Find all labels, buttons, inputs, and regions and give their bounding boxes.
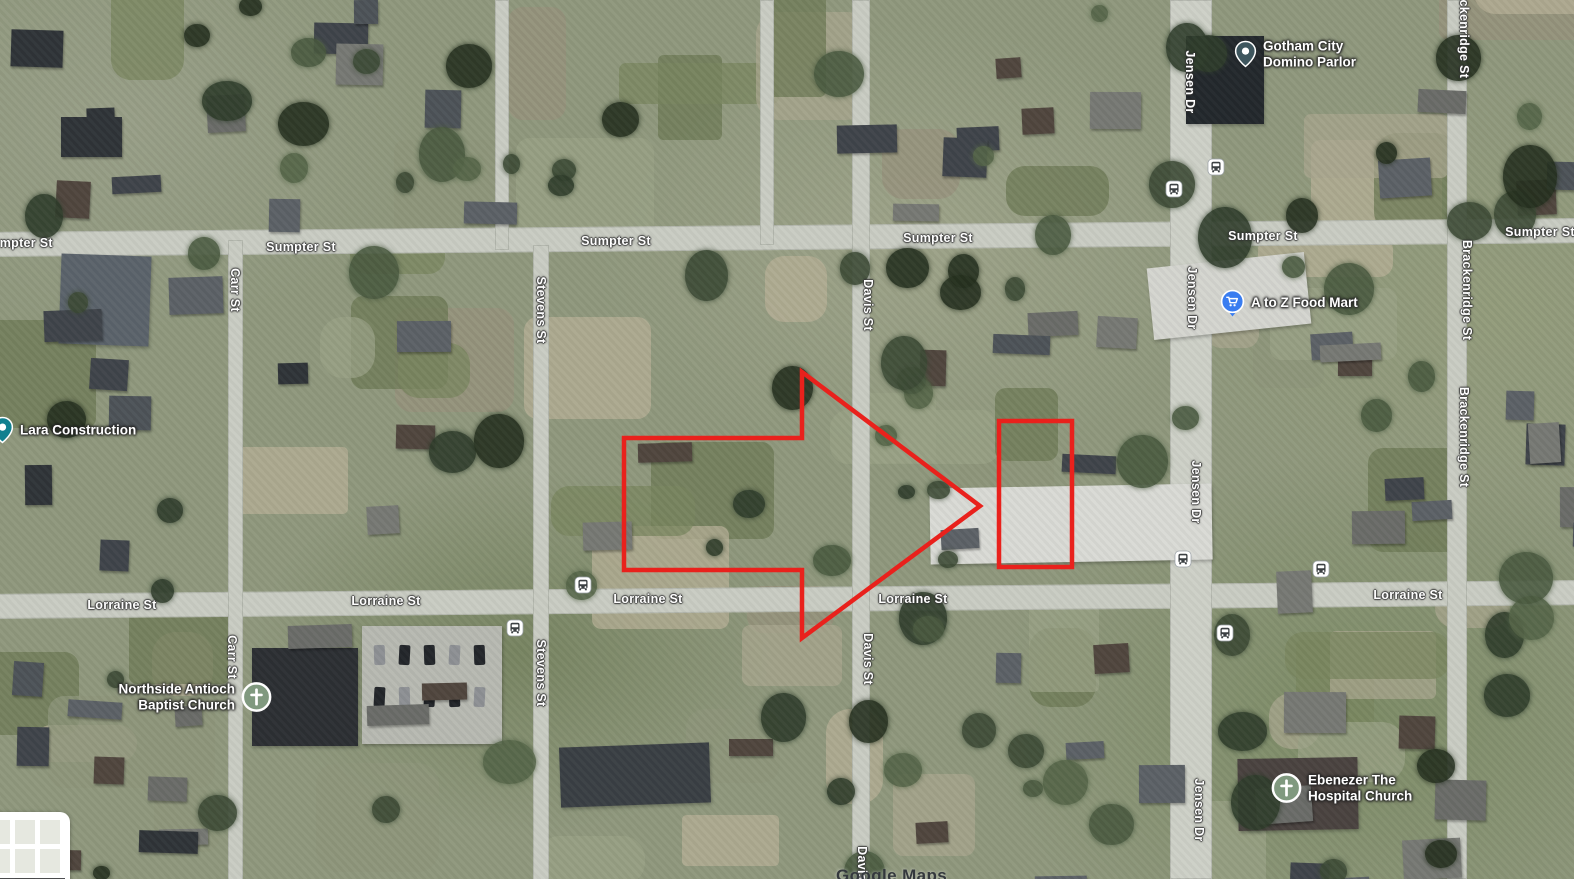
map-decor-tree bbox=[1218, 712, 1267, 751]
map-decor-house bbox=[942, 137, 987, 178]
map-decor-house bbox=[168, 276, 223, 315]
street-label-lorraine-st: Lorraine St bbox=[1373, 588, 1442, 602]
map-decor-car bbox=[399, 687, 411, 707]
map-decor-tree bbox=[1417, 749, 1455, 783]
map-decor-lawn bbox=[1474, 0, 1574, 14]
street-label-sumpter-st: Sumpter St bbox=[1228, 229, 1298, 243]
map-decor-lawn bbox=[1374, 133, 1458, 236]
map-decor-lawn bbox=[893, 774, 975, 856]
map-commercial-building bbox=[929, 484, 1212, 565]
map-decor-tree bbox=[849, 700, 888, 743]
map-decor-tree bbox=[1214, 614, 1250, 655]
street-label-sumpter-st: Sumpter St bbox=[266, 240, 336, 254]
road bbox=[533, 245, 549, 879]
street-label-brackenridge-st: Brackenridge St bbox=[1460, 240, 1474, 340]
red-parcel-annotation bbox=[999, 421, 1072, 567]
map-decor-tree bbox=[278, 102, 329, 146]
map-decor-tree bbox=[1149, 161, 1195, 208]
map-decor-tree bbox=[940, 275, 981, 311]
map-decor-tree bbox=[1005, 277, 1025, 300]
place-label: Ebenezer TheHospital Church bbox=[1308, 772, 1412, 803]
map-decor-tree bbox=[875, 425, 897, 446]
map-decor-tree bbox=[904, 377, 933, 409]
street-label-lorraine-st: Lorraine St bbox=[613, 592, 682, 606]
shopping-cart-pin-icon bbox=[1220, 289, 1245, 317]
map-decor-tree bbox=[396, 172, 414, 193]
map-decor-tree bbox=[566, 571, 598, 599]
map-decor-lawn bbox=[882, 129, 960, 199]
map-decor-lawn bbox=[48, 696, 215, 788]
street-label-jensen-dr: Jensen Dr bbox=[1185, 266, 1199, 329]
map-decor-house bbox=[1527, 422, 1561, 464]
street-label-sumpter-st: Sumpter St bbox=[1505, 225, 1574, 239]
map-decor-lawn bbox=[1296, 640, 1374, 730]
map-decor-house bbox=[729, 738, 773, 755]
map-decor-tree bbox=[1320, 859, 1348, 879]
annotation-overlay bbox=[0, 0, 1574, 879]
place-marker-gotham-city-domino-parlor[interactable]: Gotham CityDomino Parlor bbox=[1234, 38, 1356, 69]
map-decor-house bbox=[99, 539, 129, 571]
map-decor-lawn bbox=[1177, 801, 1266, 879]
church-cross-icon bbox=[1271, 773, 1302, 804]
bus-stop-icon[interactable] bbox=[507, 620, 524, 637]
street-label-jensen-dr: Jensen Dr bbox=[1183, 50, 1197, 113]
map-decor-tree bbox=[1008, 734, 1044, 768]
map-decor-lawn bbox=[1330, 631, 1436, 699]
map-decor-lawn bbox=[1270, 288, 1397, 360]
map-decor-house bbox=[1435, 780, 1487, 821]
map-decor-tree bbox=[602, 102, 639, 137]
map-decor-tree bbox=[1231, 775, 1280, 830]
map-decor-house bbox=[1310, 331, 1354, 360]
map-parking-lot bbox=[362, 626, 502, 744]
map-decor-house bbox=[89, 357, 129, 390]
map-decor-lawn bbox=[316, 763, 439, 872]
street-label-lorraine-st: Lorraine St bbox=[87, 598, 156, 612]
bus-stop-icon[interactable] bbox=[1217, 625, 1234, 642]
map-decor-tree bbox=[1198, 207, 1252, 268]
map-decor-house bbox=[1402, 837, 1462, 879]
map-decor-tree bbox=[1436, 35, 1482, 81]
bus-stop-icon[interactable] bbox=[1313, 561, 1330, 578]
map-decor-tree bbox=[25, 194, 62, 238]
map-decor-tree bbox=[1517, 103, 1542, 130]
map-decor-tree bbox=[884, 753, 923, 787]
street-label-stevens-st: Stevens St bbox=[534, 640, 548, 707]
map-decor-lawn bbox=[765, 256, 827, 322]
map-decor-house bbox=[367, 505, 400, 534]
map-decor-lawn bbox=[995, 388, 1059, 461]
map-decor-tree bbox=[761, 693, 806, 742]
map-decor-house bbox=[10, 30, 63, 69]
street-label-brackenridge-st: Brackenridge St bbox=[1457, 0, 1471, 78]
map-decor-house bbox=[396, 424, 435, 449]
street-label-davis-st: Davis St bbox=[861, 279, 875, 331]
place-label: Northside AntiochBaptist Church bbox=[119, 681, 236, 712]
place-markers-layer: Gotham CityDomino Parlor A to Z Food Mar… bbox=[0, 0, 1574, 879]
map-decor-house bbox=[1320, 342, 1381, 362]
map-decor-house bbox=[1378, 157, 1432, 198]
map-decor-tree bbox=[897, 367, 926, 394]
map-decor-house bbox=[366, 704, 428, 726]
map-decor-house bbox=[159, 829, 208, 847]
map-decor-lawn bbox=[516, 138, 654, 248]
map-decor-house bbox=[1525, 424, 1565, 466]
map-decor-tree bbox=[1494, 191, 1536, 238]
map-decor-tree bbox=[1089, 804, 1133, 845]
map-decor-car bbox=[474, 645, 486, 665]
street-label-sumpter-st: Sumpter St bbox=[903, 231, 973, 245]
map-decor-tree bbox=[1035, 215, 1070, 255]
road bbox=[852, 0, 870, 879]
map-decor-tree bbox=[184, 24, 209, 47]
map-decor-tree bbox=[814, 51, 864, 98]
map-church-building bbox=[252, 648, 358, 746]
map-decor-lawn bbox=[1207, 280, 1259, 348]
map-decor-tree bbox=[927, 481, 950, 500]
place-pin-icon bbox=[0, 417, 14, 444]
street-label-carr-st: Carr St bbox=[225, 635, 239, 679]
map-decor-house bbox=[1384, 477, 1424, 501]
map-decor-tree bbox=[47, 401, 87, 439]
map-decor-tree bbox=[1447, 202, 1492, 241]
map-decor-lawn bbox=[830, 410, 1000, 464]
map-decor-house bbox=[1255, 785, 1314, 825]
map-decor-tree bbox=[353, 49, 380, 74]
buildings-layer bbox=[0, 0, 1574, 879]
map-decor-lawn bbox=[398, 343, 470, 398]
map-decor-house bbox=[956, 126, 999, 151]
map-decor-tree bbox=[1324, 263, 1375, 316]
map-decor-tree bbox=[349, 246, 399, 300]
roads-layer bbox=[0, 0, 1574, 879]
map-decor-tree bbox=[706, 539, 723, 556]
map-decor-tree bbox=[1425, 840, 1457, 869]
place-pin-icon bbox=[1234, 41, 1257, 68]
map-decor-car bbox=[423, 687, 435, 708]
map-decor-tree bbox=[429, 431, 477, 473]
map-domino-parlor-building bbox=[1186, 36, 1264, 124]
map-decor-tree bbox=[898, 485, 915, 499]
map-decor-tree bbox=[840, 252, 871, 285]
map-decor-tree bbox=[1282, 256, 1306, 279]
street-label-lorraine-st: Lorraine St bbox=[878, 592, 947, 606]
map-decor-lawn bbox=[1368, 448, 1462, 552]
map-decor-lawn bbox=[865, 393, 936, 463]
map-decor-house bbox=[1506, 390, 1535, 420]
map-decor-house bbox=[1352, 511, 1405, 545]
place-marker-ebenezer-the-hospital-church[interactable]: Ebenezer TheHospital Church bbox=[1271, 772, 1412, 803]
map-decor-tree bbox=[483, 740, 536, 784]
bus-stop-icon[interactable] bbox=[1166, 181, 1183, 198]
map-decor-tree bbox=[239, 0, 262, 16]
map-decor-tree bbox=[552, 159, 576, 181]
map-decor-tree bbox=[948, 254, 979, 288]
map-decor-tree bbox=[1503, 145, 1557, 208]
map-decor-house bbox=[1418, 89, 1467, 114]
map-decor-house bbox=[397, 321, 451, 352]
satellite-texture bbox=[0, 0, 1574, 879]
place-marker-lara-construction[interactable]: Lara Construction bbox=[0, 417, 136, 444]
church-cross-icon bbox=[241, 682, 272, 713]
map-decor-house bbox=[893, 203, 939, 221]
map-decor-house bbox=[1289, 862, 1329, 879]
place-pin-icon bbox=[1234, 41, 1257, 68]
satellite-map[interactable]: Sumpter StSumpter StSumpter StSumpter St… bbox=[0, 0, 1574, 879]
map-decor-tree bbox=[1172, 406, 1200, 430]
map-decor-lawn bbox=[129, 596, 229, 684]
map-decor-car bbox=[448, 645, 460, 666]
map-decor-lawn bbox=[0, 652, 79, 735]
map-decor-house bbox=[139, 830, 199, 853]
place-pin-icon bbox=[0, 417, 14, 444]
transit-stops-layer bbox=[0, 0, 1574, 879]
map-decor-house bbox=[995, 57, 1022, 78]
map-decor-lawn bbox=[658, 55, 722, 140]
map-decor-house bbox=[1560, 487, 1574, 527]
map-decor-lawn bbox=[0, 320, 96, 428]
map-decor-house bbox=[1066, 741, 1105, 760]
map-decor-tree bbox=[548, 175, 574, 196]
map-decor-lawn bbox=[592, 526, 729, 629]
map-decor-lawn bbox=[394, 140, 559, 238]
map-decor-tree bbox=[1166, 23, 1207, 72]
map-decor-house bbox=[1021, 107, 1054, 134]
map-decor-tree bbox=[1361, 399, 1393, 432]
bus-stop-icon[interactable] bbox=[1208, 159, 1225, 176]
map-decor-lawn bbox=[1435, 588, 1510, 627]
map-decor-lawn bbox=[351, 296, 448, 388]
map-decor-house bbox=[108, 396, 151, 431]
map-decor-house bbox=[1547, 162, 1574, 191]
place-label: A to Z Food Mart bbox=[1251, 295, 1358, 311]
street-label-stevens-st: Stevens St bbox=[534, 277, 548, 344]
map-decor-lawn bbox=[33, 725, 137, 761]
map-decor-tree bbox=[446, 44, 492, 88]
map-decor-tree bbox=[1091, 5, 1108, 22]
map-decor-tree bbox=[685, 250, 728, 301]
map-decor-lawn bbox=[1269, 693, 1321, 749]
map-decor-house bbox=[1062, 454, 1117, 475]
map-decor-tree bbox=[827, 778, 855, 805]
road bbox=[0, 218, 1574, 257]
map-decor-house bbox=[1516, 179, 1557, 216]
map-decor-lawn bbox=[524, 317, 651, 418]
place-label: Lara Construction bbox=[20, 422, 136, 438]
map-decor-lawn bbox=[686, 709, 779, 783]
map-decor-tree bbox=[1286, 198, 1319, 233]
map-decor-house bbox=[638, 442, 693, 462]
map-decor-house bbox=[1093, 643, 1130, 674]
map-decor-lawn bbox=[1029, 628, 1096, 706]
map-decor-tree bbox=[1485, 612, 1525, 658]
layers-control[interactable]: Layers bbox=[0, 812, 70, 879]
map-decor-tree bbox=[291, 38, 325, 67]
map-decor-lawn bbox=[1298, 722, 1405, 782]
map-decor-lawn bbox=[1029, 604, 1098, 692]
red-arrow-annotation bbox=[624, 372, 980, 638]
map-decor-tree bbox=[1408, 361, 1435, 392]
map-decor-tree bbox=[68, 292, 89, 313]
map-decor-tree bbox=[1376, 142, 1397, 164]
map-decor-lawn bbox=[1006, 166, 1109, 215]
street-label-sumpter-st: Sumpter St bbox=[0, 236, 53, 250]
map-decor-lawn bbox=[1253, 275, 1324, 389]
map-decor-lawn bbox=[1258, 236, 1393, 277]
road bbox=[495, 0, 509, 250]
vegetation-layer bbox=[0, 0, 1574, 879]
map-decor-tree bbox=[881, 336, 927, 390]
map-decor-lawn bbox=[756, 12, 869, 120]
street-label-carr-st: Carr St bbox=[228, 268, 242, 312]
map-decor-tree bbox=[1499, 552, 1553, 604]
map-decor-tree bbox=[1484, 674, 1531, 717]
street-label-sumpter-st: Sumpter St bbox=[581, 234, 651, 248]
map-decor-lawn bbox=[350, 236, 445, 274]
map-decor-house bbox=[269, 199, 301, 233]
map-decor-house bbox=[354, 0, 379, 25]
road bbox=[760, 0, 774, 245]
map-decor-house bbox=[1284, 692, 1346, 733]
road bbox=[1447, 0, 1467, 879]
map-decor-tree bbox=[1043, 760, 1088, 805]
road bbox=[1170, 0, 1212, 879]
map-decor-tree bbox=[913, 616, 944, 641]
map-decor-lawn bbox=[1304, 114, 1448, 178]
map-decor-house bbox=[278, 363, 308, 385]
map-decor-house bbox=[941, 528, 980, 550]
bus-stop-icon[interactable] bbox=[1175, 551, 1192, 568]
map-decor-tree bbox=[813, 545, 851, 576]
map-decor-tree bbox=[453, 157, 481, 181]
map-building bbox=[559, 742, 711, 807]
map-food-mart-building bbox=[1147, 252, 1312, 340]
map-decor-tree bbox=[107, 671, 124, 688]
map-decor-tree bbox=[93, 866, 110, 879]
road bbox=[0, 580, 1574, 619]
map-decor-lawn bbox=[395, 308, 513, 412]
map-building bbox=[58, 253, 151, 346]
map-decor-lawn bbox=[960, 454, 1055, 504]
map-decor-tree bbox=[372, 796, 400, 824]
shopping-cart-icon bbox=[1220, 289, 1245, 317]
map-decor-house bbox=[314, 23, 368, 55]
map-decor-tree bbox=[1023, 780, 1043, 797]
map-decor-lawn bbox=[682, 815, 779, 866]
place-marker-northside-antioch-baptist-church[interactable]: Northside AntiochBaptist Church bbox=[119, 681, 273, 712]
bus-stop-icon[interactable] bbox=[575, 577, 592, 594]
map-decor-house bbox=[837, 124, 897, 153]
map-decor-house bbox=[12, 661, 44, 697]
map-decor-lawn bbox=[154, 790, 220, 852]
map-decor-car bbox=[449, 687, 461, 707]
map-decor-tree bbox=[962, 713, 996, 749]
map-decor-tree bbox=[886, 248, 929, 288]
place-label: Gotham CityDomino Parlor bbox=[1263, 38, 1356, 69]
map-decor-tree bbox=[938, 551, 958, 568]
map-decor-house bbox=[1096, 316, 1137, 349]
street-label-davis-st: Davis St bbox=[861, 633, 875, 685]
map-decor-house bbox=[919, 349, 946, 385]
map-decor-tree bbox=[503, 154, 520, 174]
map-decor-tree bbox=[474, 414, 524, 468]
map-decor-house bbox=[44, 309, 103, 343]
map-decor-tree bbox=[157, 498, 183, 523]
map-decor-tree bbox=[151, 579, 174, 603]
map-decor-house bbox=[1399, 716, 1436, 750]
map-decor-house bbox=[1035, 875, 1088, 879]
map-decor-house bbox=[93, 757, 124, 785]
map-decor-house bbox=[463, 201, 517, 224]
street-label-jensen-dr: Jensen Dr bbox=[1192, 778, 1206, 841]
map-decor-lawn bbox=[1285, 632, 1451, 678]
map-decor-lawn bbox=[1439, 0, 1574, 40]
map-decor-tree bbox=[188, 237, 220, 269]
street-label-lorraine-st: Lorraine St bbox=[351, 594, 420, 608]
street-label-jensen-dr: Jensen Dr bbox=[1189, 460, 1203, 523]
map-decor-car bbox=[374, 645, 386, 665]
map-decor-house bbox=[915, 822, 948, 845]
map-decor-lawn bbox=[826, 709, 883, 804]
street-label-brackenridge-st: Brackenridge St bbox=[1457, 387, 1471, 487]
map-decor-house bbox=[335, 44, 383, 86]
map-decor-house bbox=[86, 107, 115, 147]
map-decor-tree bbox=[772, 366, 813, 410]
map-decor-house bbox=[288, 624, 352, 649]
map-decor-tree bbox=[202, 81, 252, 122]
map-decor-house bbox=[16, 726, 48, 765]
map-decor-lawn bbox=[508, 7, 566, 121]
map-decor-lawn bbox=[760, 0, 825, 97]
layers-map-preview bbox=[0, 817, 65, 879]
map-decor-tree bbox=[733, 490, 764, 518]
map-decor-car bbox=[373, 687, 385, 708]
map-decor-house bbox=[112, 174, 161, 193]
map-decor-house bbox=[1090, 91, 1142, 128]
map-decor-house bbox=[996, 652, 1022, 682]
map-decor-tree bbox=[419, 127, 465, 182]
place-marker-a-to-z-food-mart[interactable]: A to Z Food Mart bbox=[1220, 289, 1358, 317]
map-decor-lawn bbox=[320, 317, 375, 378]
map-decor-house bbox=[1027, 311, 1078, 338]
map-decor-house bbox=[1412, 500, 1453, 521]
map-church-building bbox=[1237, 757, 1358, 831]
map-decor-house bbox=[583, 521, 632, 550]
map-decor-lawn bbox=[1311, 140, 1442, 231]
street-labels-layer: Sumpter StSumpter StSumpter StSumpter St… bbox=[0, 0, 1574, 879]
road bbox=[228, 240, 243, 879]
map-decor-tree bbox=[899, 592, 948, 645]
map-decor-tree bbox=[280, 153, 309, 183]
landmark-buildings-layer bbox=[0, 0, 1574, 879]
map-decor-lawn bbox=[111, 0, 185, 80]
terrain-layer bbox=[0, 0, 1574, 879]
map-decor-car bbox=[473, 687, 485, 708]
map-decor-house bbox=[174, 705, 203, 727]
map-decor-house bbox=[1139, 765, 1185, 803]
map-decor-tree bbox=[1190, 35, 1226, 72]
map-decor-house bbox=[993, 334, 1051, 355]
map-decor-tree bbox=[1509, 596, 1554, 641]
map-decor-house bbox=[61, 117, 122, 157]
map-decor-lawn bbox=[152, 632, 213, 696]
map-decor-lawn bbox=[619, 63, 778, 105]
map-decor-lawn bbox=[537, 836, 645, 879]
map-decor-lawn bbox=[651, 442, 774, 539]
map-decor-house bbox=[421, 683, 466, 701]
map-decor-car bbox=[424, 645, 436, 665]
map-decor-lawn bbox=[238, 447, 349, 515]
